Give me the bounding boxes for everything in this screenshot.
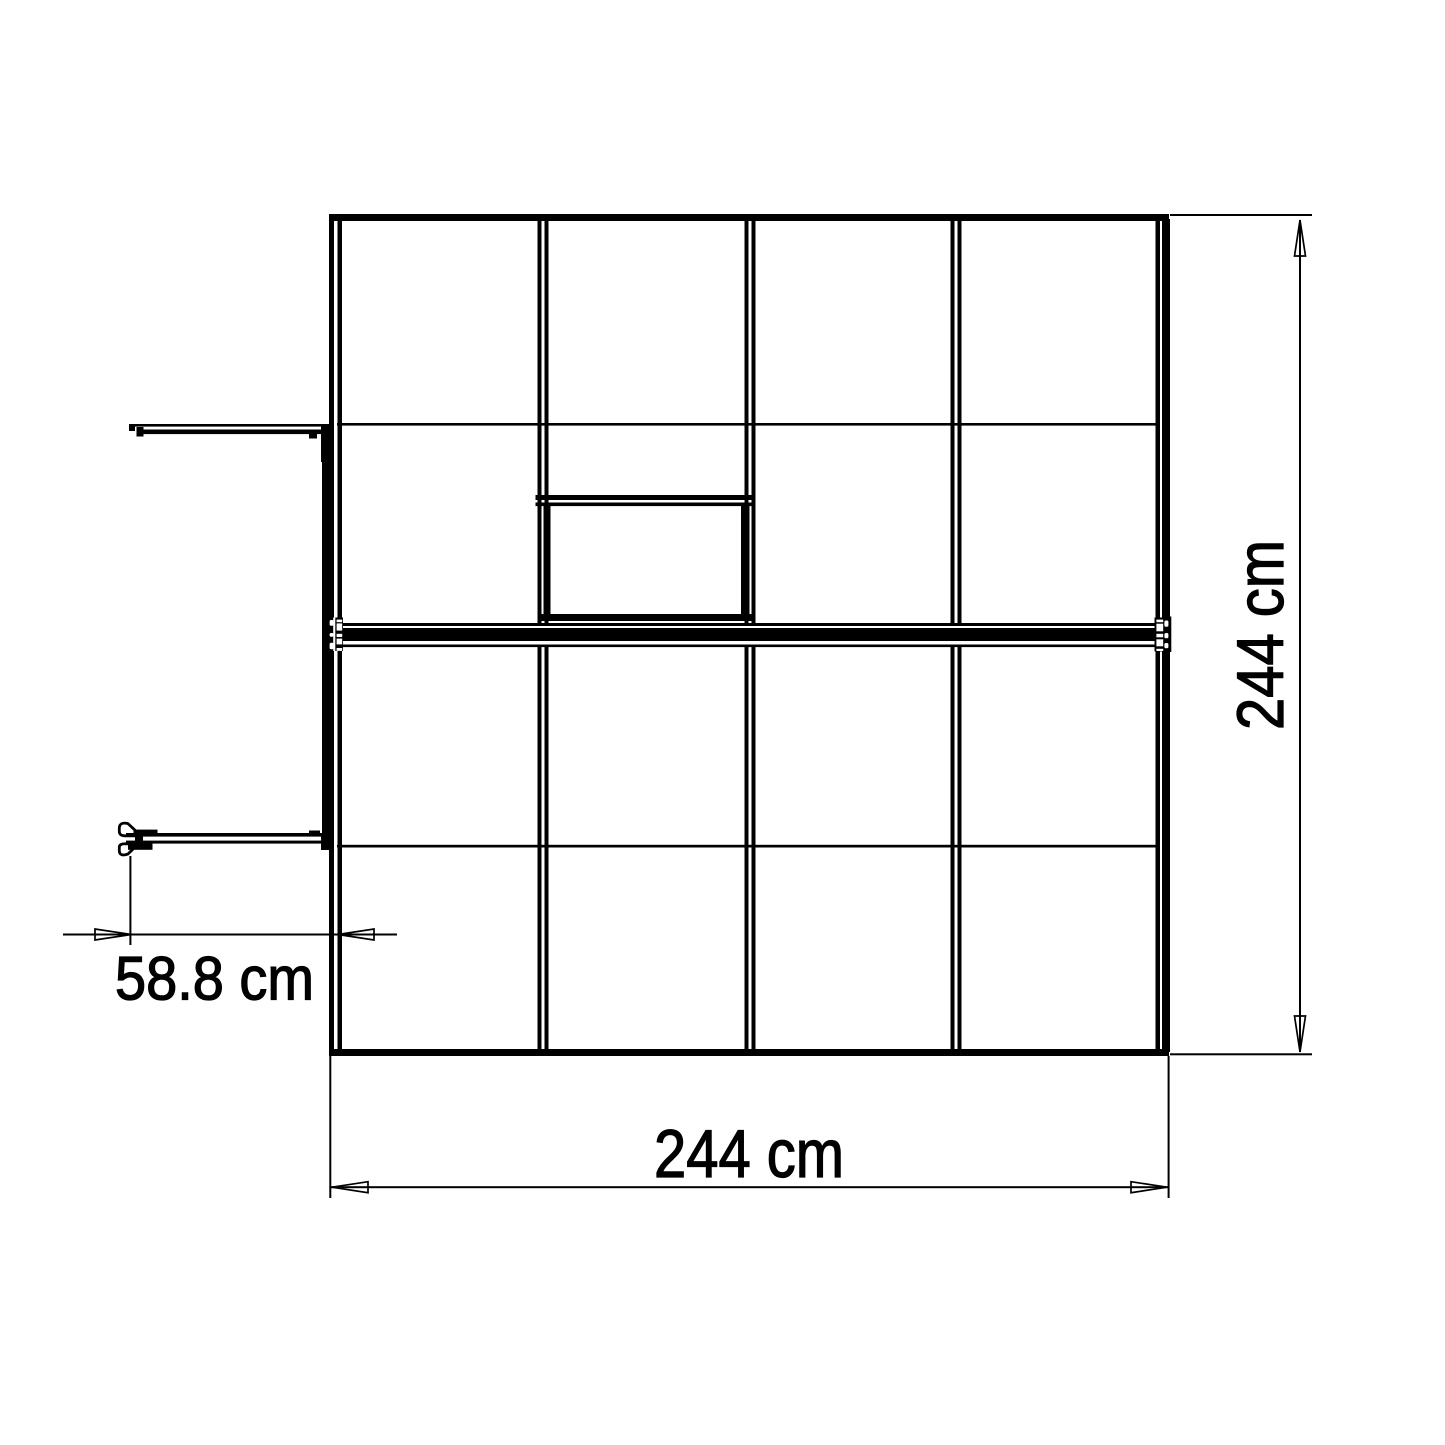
svg-text:244 cm: 244 cm — [654, 1116, 844, 1192]
svg-text:244 cm: 244 cm — [1223, 540, 1297, 730]
svg-text:58.8 cm: 58.8 cm — [115, 945, 314, 1013]
